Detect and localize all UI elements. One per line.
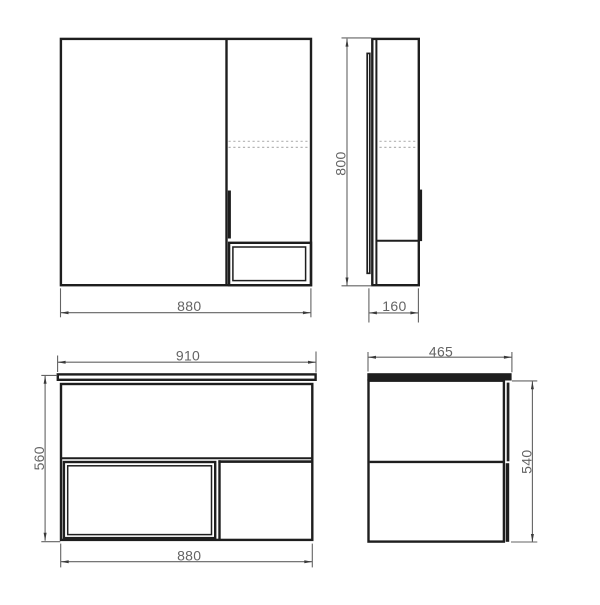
svg-text:880: 880 xyxy=(177,548,201,564)
svg-text:880: 880 xyxy=(177,298,201,314)
svg-text:560: 560 xyxy=(31,446,47,470)
svg-text:910: 910 xyxy=(176,347,200,363)
svg-text:160: 160 xyxy=(382,298,406,314)
svg-text:800: 800 xyxy=(333,151,349,175)
svg-text:540: 540 xyxy=(518,450,534,474)
svg-text:465: 465 xyxy=(429,344,453,360)
